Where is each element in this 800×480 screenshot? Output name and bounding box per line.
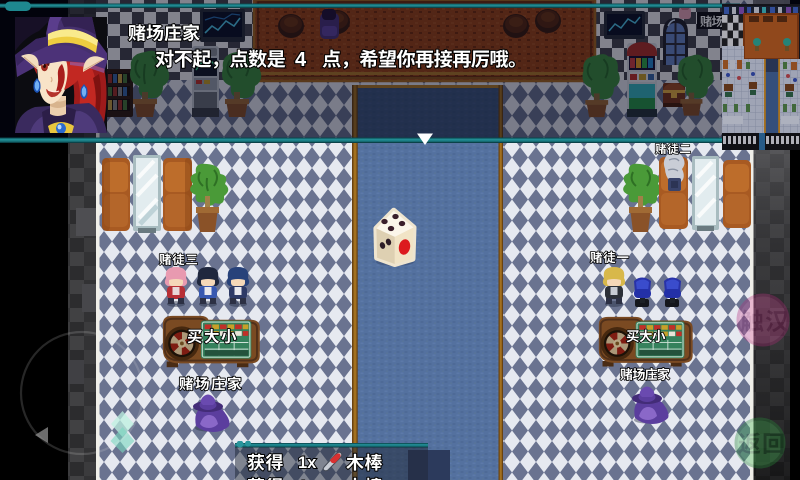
svg-text:1x: 1x <box>298 454 317 472</box>
svg-text:4: 4 <box>295 49 307 71</box>
